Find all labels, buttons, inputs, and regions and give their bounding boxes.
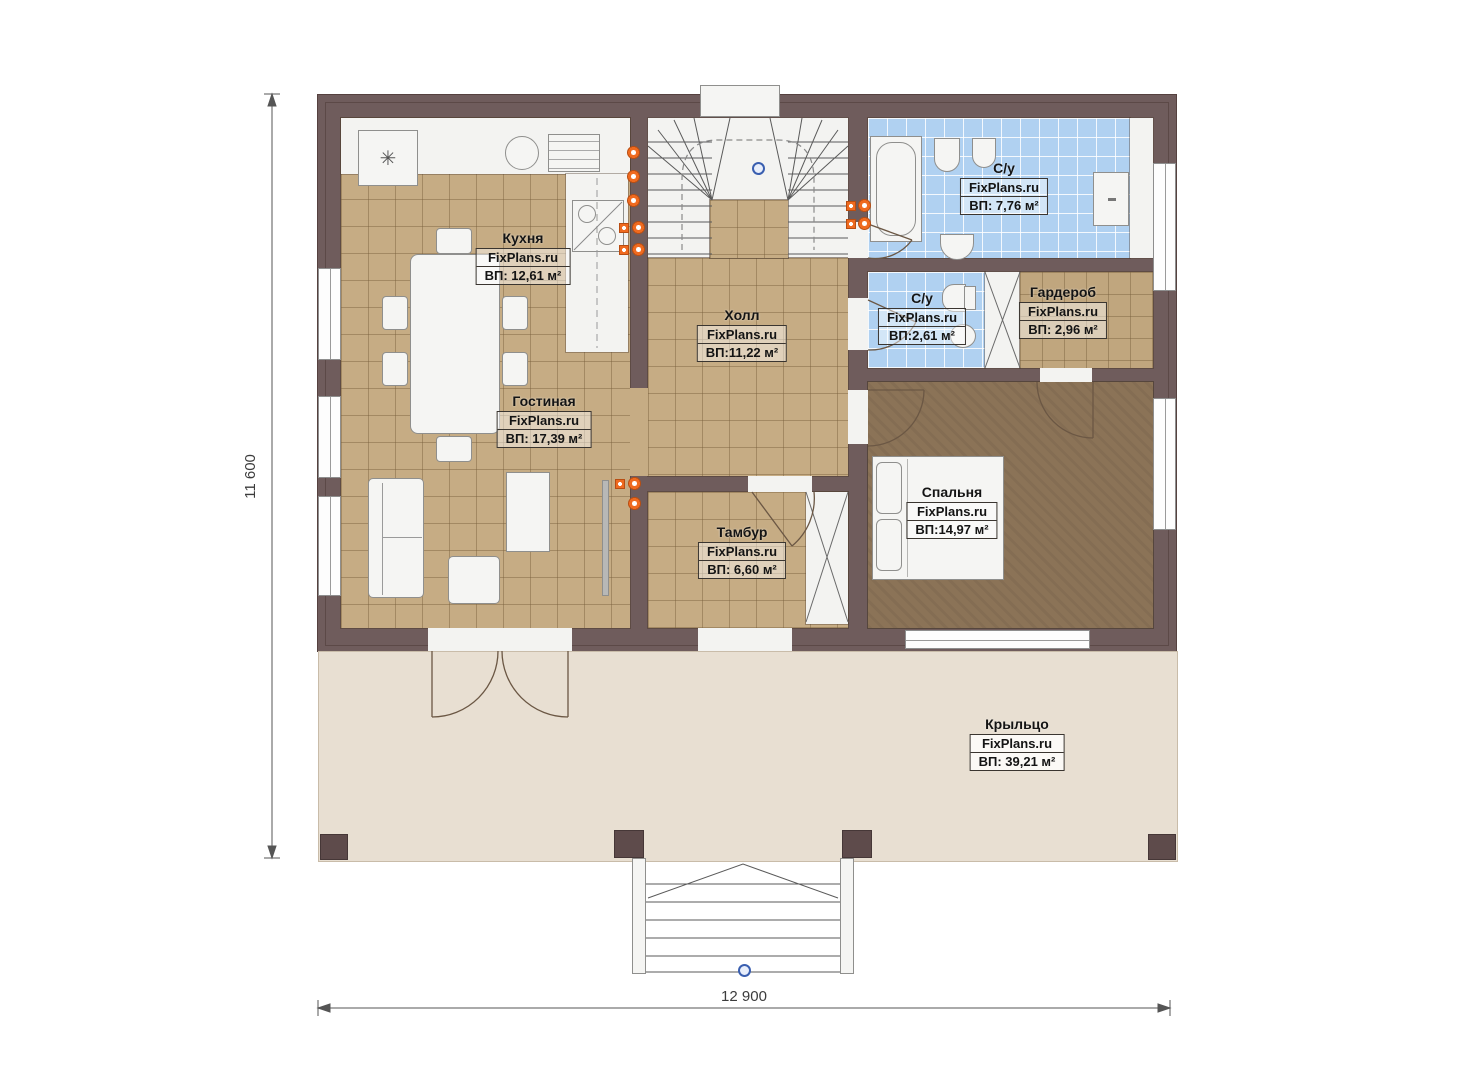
outlet-icon (628, 477, 641, 490)
chair (502, 352, 528, 386)
room-name: Тамбур (698, 524, 786, 540)
room-name: С/у (878, 290, 966, 306)
vent-block-top (700, 85, 780, 117)
room-brand: FixPlans.ru (699, 543, 785, 560)
room-name: С/у (960, 160, 1048, 176)
chair (436, 436, 472, 462)
room-brand: FixPlans.ru (498, 412, 591, 429)
dimension-height: 11 600 (242, 454, 259, 499)
switch-icon (615, 479, 625, 489)
room-label-wardrobe: Гардероб FixPlans.ru ВП: 2,96 м² (1019, 284, 1107, 339)
outlet-icon (627, 146, 640, 159)
outlet-icon (632, 243, 645, 256)
stove (548, 134, 600, 172)
room-label-hall: Холл FixPlans.ru ВП:11,22 м² (697, 307, 787, 362)
vestibule-closet (806, 492, 848, 624)
toilet (934, 138, 960, 172)
room-name: Холл (697, 307, 787, 323)
outlet-icon (632, 221, 645, 234)
pillow (876, 462, 902, 514)
cabinet-handle (1108, 198, 1116, 201)
room-label-kitchen: Кухня FixPlans.ru ВП: 12,61 м² (476, 230, 571, 285)
room-area: ВП: 2,96 м² (1020, 320, 1106, 338)
room-brand: FixPlans.ru (907, 503, 996, 520)
bathroom-door-strip (1130, 118, 1153, 258)
room-name: Гостиная (497, 393, 592, 409)
hall-floor (648, 258, 848, 476)
outlet-icon (858, 217, 871, 230)
room-brand: FixPlans.ru (698, 326, 786, 343)
opening-living-hall (630, 388, 648, 476)
door-gap-wc (848, 298, 868, 350)
switch-icon (619, 223, 629, 233)
stair-rail-right (840, 858, 854, 974)
room-label-porch: Крыльцо FixPlans.ru ВП: 39,21 м² (970, 716, 1065, 771)
window-right-bedroom (1153, 398, 1176, 530)
sofa-seat-line (382, 483, 383, 595)
pillow (876, 519, 902, 571)
window-left-3 (318, 496, 341, 596)
porch-post (842, 830, 872, 858)
room-area: ВП: 17,39 м² (498, 429, 591, 447)
room-area: ВП:2,61 м² (879, 326, 965, 344)
coffee-table (506, 472, 550, 552)
kitchen-sink-round (505, 136, 539, 170)
corner-sink-unit (572, 200, 624, 252)
vestibule-entry-threshold (698, 628, 792, 651)
room-area: ВП: 6,60 м² (699, 560, 785, 578)
hall-upper-notch (710, 200, 788, 258)
porch-post (1148, 834, 1176, 860)
room-name: Кухня (476, 230, 571, 246)
door-gap-bedroom-west (848, 390, 868, 444)
radiator (602, 480, 609, 596)
room-label-vestibule: Тамбур FixPlans.ru ВП: 6,60 м² (698, 524, 786, 579)
floor-plan: ✳ (0, 0, 1474, 1080)
sofa (368, 478, 424, 598)
fridge: ✳ (358, 130, 418, 186)
room-label-bedroom: Спальня FixPlans.ru ВП:14,97 м² (906, 484, 997, 539)
stair-rail-left (632, 858, 646, 974)
switch-icon (846, 201, 856, 211)
bathtub (870, 136, 922, 242)
window-left-2 (318, 396, 341, 478)
room-label-wc: С/у FixPlans.ru ВП:2,61 м² (878, 290, 966, 345)
armchair (448, 556, 500, 604)
entry-marker-icon (738, 964, 751, 977)
door-gap-wardrobe (1040, 368, 1092, 382)
room-name: Гардероб (1019, 284, 1107, 300)
room-brand: FixPlans.ru (961, 179, 1047, 196)
front-door-threshold (428, 628, 572, 651)
room-area: ВП:11,22 м² (698, 343, 786, 361)
window-right-bathroom (1153, 163, 1176, 291)
room-area: ВП:14,97 м² (907, 520, 996, 538)
room-name: Спальня (906, 484, 997, 500)
cabinet-between-baths (985, 272, 1020, 368)
door-gap-vestibule (748, 476, 812, 492)
room-name: Крыльцо (970, 716, 1065, 732)
outlet-icon (627, 170, 640, 183)
room-area: ВП: 7,76 м² (961, 196, 1047, 214)
switch-icon (619, 245, 629, 255)
dimension-width: 12 900 (721, 988, 767, 1005)
outlet-icon (628, 497, 641, 510)
outlet-icon (858, 199, 871, 212)
porch-post (614, 830, 644, 858)
room-label-bathroom: С/у FixPlans.ru ВП: 7,76 м² (960, 160, 1048, 215)
chair (502, 296, 528, 330)
switch-icon (846, 219, 856, 229)
room-brand: FixPlans.ru (879, 309, 965, 326)
fridge-icon: ✳ (380, 148, 397, 170)
chair (382, 296, 408, 330)
sink-bowl-1 (578, 205, 596, 223)
chair (436, 228, 472, 254)
sofa-mid-line (382, 537, 422, 538)
sink-bowl-2 (598, 227, 616, 245)
chair (382, 352, 408, 386)
stair-marker-icon (752, 162, 765, 175)
room-area: ВП: 12,61 м² (477, 266, 570, 284)
room-label-living: Гостиная FixPlans.ru ВП: 17,39 м² (497, 393, 592, 448)
washer-cabinet (1093, 172, 1129, 226)
room-brand: FixPlans.ru (1020, 303, 1106, 320)
porch-post (320, 834, 348, 860)
room-brand: FixPlans.ru (477, 249, 570, 266)
room-area: ВП: 39,21 м² (971, 752, 1064, 770)
room-brand: FixPlans.ru (971, 735, 1064, 752)
window-left-1 (318, 268, 341, 360)
bathtub-basin (876, 142, 916, 236)
window-bedroom-south (905, 630, 1090, 649)
outlet-icon (627, 194, 640, 207)
